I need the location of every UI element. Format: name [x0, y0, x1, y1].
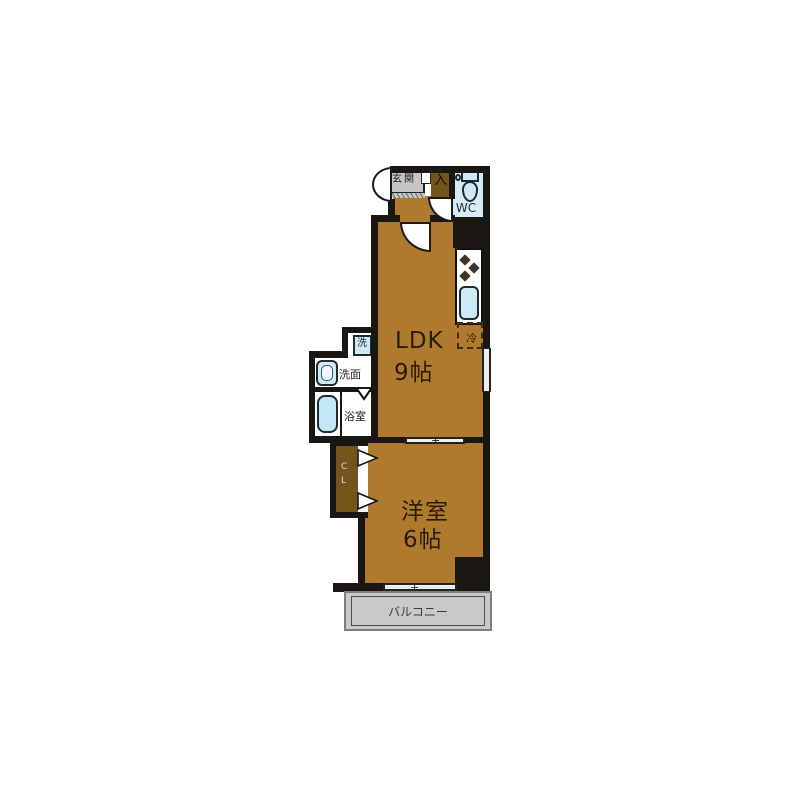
entrance-step-hatch	[390, 193, 425, 198]
western-room-size-label: 6帖	[403, 520, 443, 554]
sliding-door-mark: +	[431, 435, 440, 446]
refrigerator-space: 冷	[457, 322, 483, 349]
pillar-western-room	[455, 557, 483, 585]
balcony-label: バルコニー	[346, 603, 490, 620]
bath-folding-door-icon	[356, 388, 372, 401]
closet-floor	[336, 446, 358, 512]
ldk-name-label: LDK	[395, 328, 444, 354]
toilet-knob-icon	[455, 174, 461, 181]
washroom-label: 洗面	[339, 366, 361, 382]
wall-right-upper	[483, 166, 490, 348]
closet-letter-l: L	[341, 475, 346, 488]
window-ldk-right	[482, 348, 491, 392]
washer-label: 洗	[357, 339, 367, 350]
wall-top	[390, 166, 490, 173]
bathroom-label: 浴室	[344, 408, 366, 424]
folding-door-icon	[357, 492, 379, 510]
balcony: バルコニー	[344, 591, 492, 631]
entrance-label: 玄関	[392, 175, 424, 186]
front-door-swing-icon	[372, 167, 392, 202]
folding-door-icon	[357, 449, 379, 467]
kitchen-sink-icon	[459, 286, 479, 320]
wall-wc-left	[449, 166, 455, 199]
refrigerator-label: 冷	[466, 330, 477, 346]
washbasin-bowl-icon	[321, 365, 333, 381]
wall-outer-left	[309, 351, 315, 443]
closet-letter-c: C	[341, 461, 347, 474]
floor-plan: 玄関 入 WC 冷 洗 洗面 浴室 C L	[0, 0, 800, 800]
bathtub-icon	[317, 395, 338, 433]
ldk-size-label: 9帖	[394, 353, 434, 387]
window-balcony	[383, 583, 457, 591]
wall-rooms-divider-left	[365, 437, 405, 443]
wall-right-lower	[483, 392, 490, 591]
wc-label: WC	[449, 202, 483, 215]
wall-rooms-divider-right	[465, 437, 483, 443]
wall-closet-left	[330, 440, 336, 518]
washbasin-icon	[316, 360, 338, 386]
entrance-step-label: 入	[434, 174, 447, 188]
wall-western-left	[358, 512, 365, 591]
pillar-wc-kitchen	[453, 217, 483, 248]
bath-divider-wall	[340, 392, 342, 436]
